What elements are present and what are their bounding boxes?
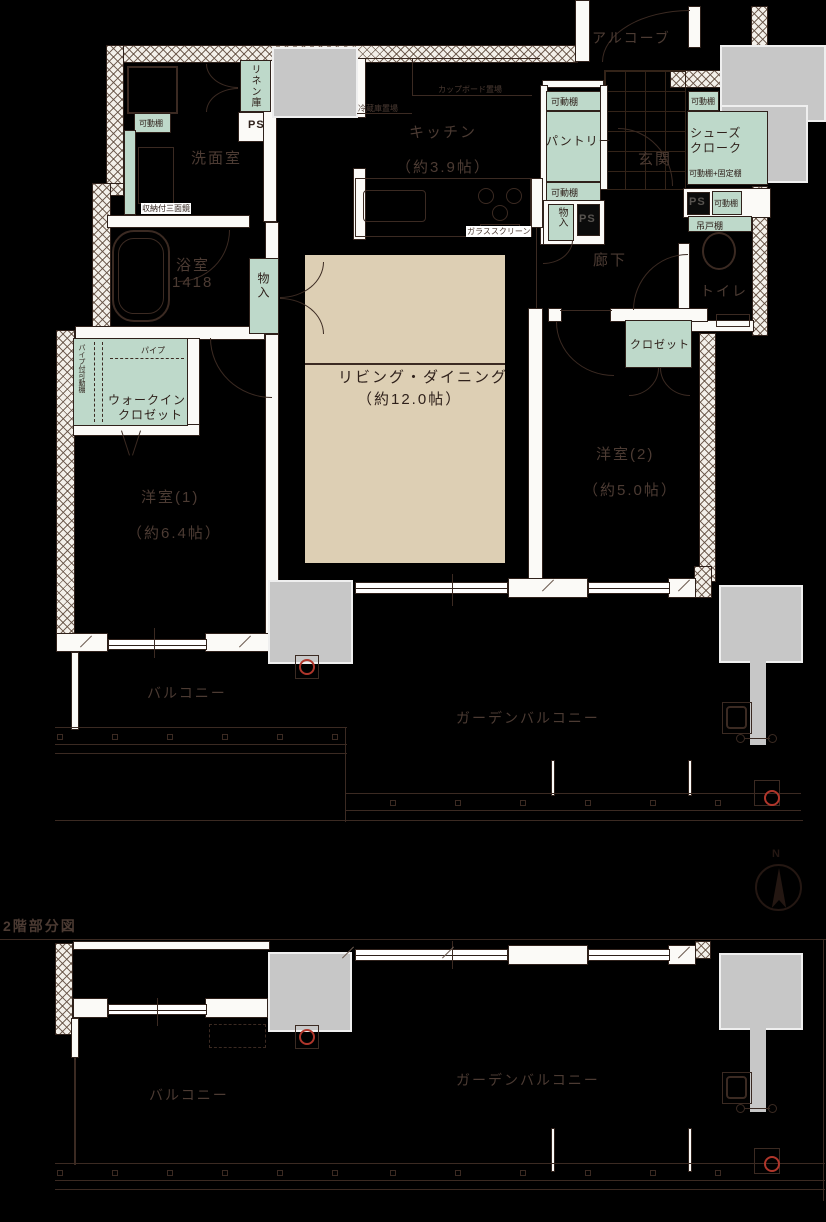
label-ps-washroom: PS: [248, 119, 265, 131]
ac-valve-main-1: [736, 734, 745, 743]
living-dining-floor: [305, 255, 505, 563]
railing-post: [390, 1170, 396, 1176]
balcony-2f-thin-post-2: [688, 1128, 692, 1172]
rail-main-low: [55, 820, 347, 821]
living-dining-divider-line: [305, 363, 505, 365]
label-bathroom: 浴室: [176, 254, 210, 275]
label-balcony-2f: バルコニー: [149, 1085, 229, 1105]
hatch-wall-right-lower: [699, 333, 716, 582]
floor2-border-right: [823, 939, 824, 1201]
balcony-2f-thin-post-1: [551, 1128, 555, 1172]
label-shoes-cloak-2: クローク: [690, 139, 742, 156]
label-living-dining-area: （約12.0帖）: [357, 388, 462, 409]
ac-line-2f: [744, 1108, 770, 1109]
railing-post: [520, 1170, 526, 1176]
hatch-opening-2f: [209, 1024, 266, 1048]
kitchen-top-line: [366, 58, 540, 59]
window-arrow-2f-1: [157, 998, 158, 1026]
pillar-top-left: [272, 47, 358, 118]
toilet-bowl: [702, 232, 736, 270]
label-kitchen-area: （約3.9帖）: [396, 156, 491, 177]
label-entrance: 玄関: [638, 148, 672, 169]
fridge-divider-line: [412, 58, 413, 96]
wall-ld-bed2-divider: [528, 308, 543, 582]
ac-line-main: [744, 738, 770, 739]
pier-2f-mid: [508, 945, 588, 965]
pier-2f-left-2: [205, 998, 268, 1018]
railing-post: [715, 1170, 721, 1176]
wall-ld-upper: [265, 222, 279, 262]
railing-post: [222, 734, 228, 740]
label-bathroom-size: 1418: [172, 274, 213, 291]
railing-post: [167, 1170, 173, 1176]
label-storage-pantry: 物入: [554, 207, 569, 239]
bed1-door-arc: [210, 338, 272, 398]
stove-burner-3: [492, 205, 508, 221]
window-bed2: [588, 582, 670, 594]
drain-main-right: [764, 790, 780, 806]
label-kitchen: キッチン: [409, 121, 477, 142]
label-movable-shelf-shoes-small: 可動棚: [714, 198, 738, 209]
hatch-2f-right: [695, 941, 711, 959]
rail-main-1: [55, 727, 347, 728]
drain-main-left: [299, 659, 315, 675]
pillar-2f-right: [719, 953, 803, 1030]
label-hallway: 廊下: [593, 249, 627, 270]
ac-unit-2f-inner: [726, 1076, 747, 1099]
rail-garden-2: [345, 810, 801, 811]
hatch-wall-left-mid: [92, 183, 111, 337]
kitchen-sink: [363, 190, 426, 222]
cupboard-counter-line: [413, 95, 532, 96]
railing-post: [332, 734, 338, 740]
label-toilet: トイレ: [700, 281, 748, 301]
railing-post: [57, 734, 63, 740]
pier-south-mid: [508, 578, 588, 598]
toilet-door-arc: [633, 254, 688, 310]
label-floor2-caption: 2階部分図: [3, 916, 77, 936]
label-linen-closet: リネン庫: [247, 64, 262, 110]
wic-shelf-dash-1: [94, 342, 95, 422]
rail-2f-2: [55, 1180, 825, 1181]
label-movable-shelf-shoes-top: 可動棚: [691, 96, 715, 107]
railing-post: [112, 1170, 118, 1176]
ac-valve-2f-1: [736, 1104, 745, 1113]
pillar-2f-right-stem: [750, 1028, 766, 1112]
hatch-wall-left-upper: [106, 45, 124, 188]
wic-shelf-dash-2: [102, 342, 103, 422]
closet-door-arc-1: [629, 368, 659, 396]
pillar-balcony-right: [719, 585, 803, 663]
label-movable-shelf-pantry-top: 可動棚: [551, 95, 578, 108]
wall-wic-right: [186, 338, 200, 426]
rail-2f-1: [55, 1163, 825, 1164]
railing-post: [585, 800, 591, 806]
window-ld: [355, 582, 508, 594]
stove-burner-2: [506, 188, 522, 204]
balcony-2f-post-line: [74, 1058, 76, 1165]
railing-post: [455, 800, 461, 806]
railing-post: [57, 1170, 63, 1176]
balcony-thin-post-2: [688, 760, 692, 796]
label-wic-2: クロゼット: [118, 406, 183, 423]
washroom-door-arc-2: [206, 88, 238, 112]
balcony-2f-post-left: [71, 1018, 79, 1058]
vanity-counter: [124, 130, 136, 215]
label-garden-balcony-main: ガーデンバルコニー: [456, 708, 600, 728]
wall-bath-top: [107, 215, 250, 228]
balcony-post-left: [71, 652, 79, 730]
label-closet-bed2: クロゼット: [630, 336, 690, 352]
vanity-basin: [138, 147, 174, 204]
wall-alcove-left: [575, 0, 590, 62]
pillar-2f-left: [268, 952, 352, 1032]
window-2f-bed2: [588, 949, 670, 961]
window-bed1: [108, 639, 207, 650]
railing-post: [222, 1170, 228, 1176]
railing-post: [455, 1170, 461, 1176]
balcony-thin-post-1: [551, 760, 555, 796]
window-arrow-line-2: [452, 574, 453, 606]
label-bedroom1: 洋室(1): [141, 486, 199, 507]
rail-main-2: [55, 744, 347, 745]
pillar-balcony-left: [268, 580, 353, 664]
railing-post: [520, 800, 526, 806]
pier-south-left-1: [56, 633, 108, 652]
label-garden-balcony-2f: ガーデンバルコニー: [456, 1070, 600, 1090]
floor2-border-top: [0, 939, 826, 940]
label-pantry: パントリー: [546, 132, 612, 149]
wic-pipe-dash: [110, 358, 184, 359]
ac-valve-main-2: [768, 734, 777, 743]
railing-post: [650, 1170, 656, 1176]
railing-post: [715, 800, 721, 806]
floorplan-canvas: アルコーブ 玄関 リネン庫 PS 可動棚 洗面室 収納付三面鏡 浴室 1418 …: [0, 0, 826, 1222]
railing-post: [112, 734, 118, 740]
label-ps-shoes: PS: [689, 196, 706, 208]
label-movable-shelf-washroom: 可動棚: [139, 118, 163, 129]
toilet-tank: [716, 314, 750, 327]
label-movable-shelf-pantry-bottom: 可動棚: [551, 186, 578, 199]
hall-ld-door-arc: [543, 240, 573, 264]
railing-post: [167, 734, 173, 740]
rail-main-3: [55, 753, 347, 754]
stove-burner-1: [478, 188, 494, 204]
label-pipe-shelf: パイプ付可動棚: [76, 344, 86, 422]
pier-south-left-2: [205, 633, 271, 652]
label-washroom: 洗面室: [191, 147, 242, 168]
label-cupboard-space: カップボード置場: [438, 84, 502, 95]
label-movable-fixed-shelf: 可動棚+固定棚: [689, 168, 742, 179]
rail-garden-3: [333, 820, 803, 821]
hatch-wall-band-end: [694, 566, 712, 598]
label-compass-north: N: [772, 848, 781, 860]
label-balcony-main: バルコニー: [147, 683, 227, 703]
drain-2f-right: [764, 1156, 780, 1172]
wall-2f-top-band: [73, 941, 270, 950]
window-2f-ld: [355, 949, 508, 961]
label-bedroom1-area: （約6.4帖）: [127, 522, 222, 543]
label-storage-hall: 物入: [255, 272, 272, 322]
closet-door-arc-2: [660, 368, 690, 396]
label-fridge-space: 冷蔵庫置場: [358, 103, 398, 114]
railing-post: [650, 800, 656, 806]
label-ps-pantry: PS: [579, 213, 596, 225]
label-bedroom2-area: （約5.0帖）: [583, 479, 678, 500]
washing-machine: [127, 66, 178, 114]
label-bedroom2: 洋室(2): [596, 443, 654, 464]
bed2-door-leaf: [560, 310, 612, 311]
rail-garden-1: [345, 793, 801, 794]
railing-post: [390, 800, 396, 806]
pillar-balcony-right-stem: [750, 661, 766, 745]
ac-valve-2f-2: [768, 1104, 777, 1113]
wall-pantry-top: [542, 80, 604, 88]
label-hanging-cupboard: 吊戸棚: [696, 219, 723, 232]
railing-post: [585, 1170, 591, 1176]
hall-door-frame-line: [536, 228, 537, 308]
label-living-dining: リビング・ダイニング: [338, 366, 508, 387]
drain-2f-left: [299, 1029, 315, 1045]
bed2-door-arc: [556, 322, 614, 376]
label-pipe: パイプ: [141, 345, 165, 356]
rail-step-vertical: [345, 727, 346, 822]
rail-2f-3: [55, 1189, 825, 1190]
pier-2f-left-1: [73, 998, 108, 1018]
label-alcove: アルコーブ: [592, 28, 671, 48]
washroom-door-arc-1: [206, 64, 238, 88]
label-mirror-cabinet: 収納付三面鏡: [141, 203, 191, 214]
railing-post: [332, 1170, 338, 1176]
railing-post: [277, 1170, 283, 1176]
railing-post: [277, 734, 283, 740]
label-glass-screen: ガラススクリーン: [466, 226, 531, 237]
window-arrow-line-1: [154, 628, 155, 658]
hatch-wall-alcove-right: [751, 6, 768, 47]
ac-unit-main-inner: [726, 706, 747, 729]
bathtub-inner: [118, 238, 164, 314]
